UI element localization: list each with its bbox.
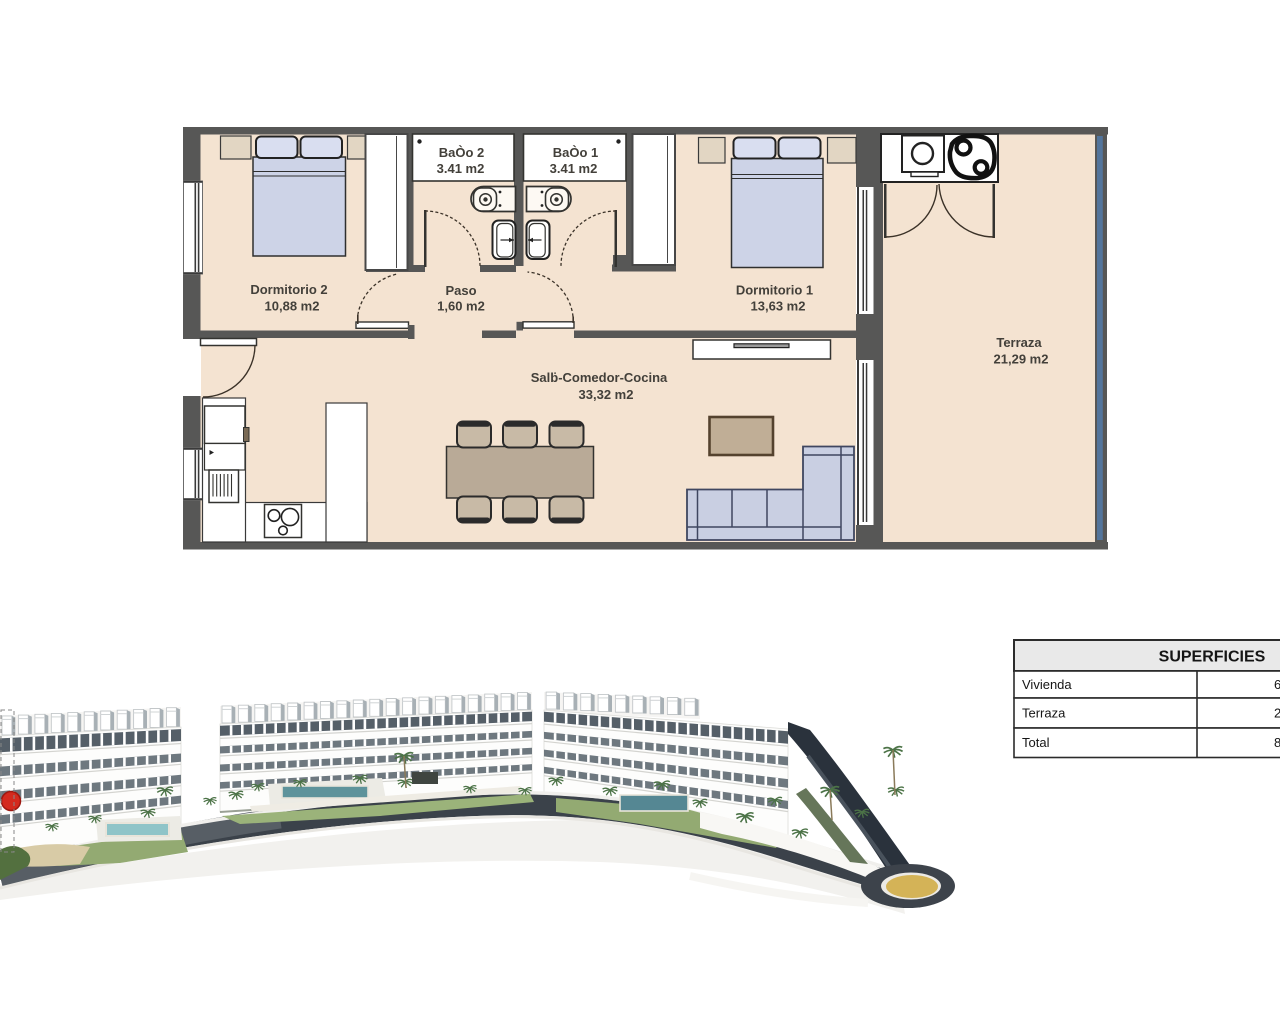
svg-text:33,32 m2: 33,32 m2	[579, 387, 634, 402]
svg-text:BaÒo 2: BaÒo 2	[439, 145, 485, 160]
svg-text:BaÒo 1: BaÒo 1	[553, 145, 599, 160]
svg-text:Terraza: Terraza	[996, 335, 1042, 350]
svg-text:Vivienda: Vivienda	[1022, 677, 1072, 692]
svg-text:21,29 m2: 21,29 m2	[994, 352, 1049, 367]
svg-text:Total: Total	[1022, 735, 1050, 750]
svg-text:Salḃ-Comedor-Cocina: Salḃ-Comedor-Cocina	[531, 370, 668, 385]
svg-text:1,60 m2: 1,60 m2	[437, 299, 485, 314]
svg-text:Terraza: Terraza	[1022, 706, 1066, 721]
svg-text:66,34 m2: 66,34 m2	[1274, 677, 1280, 692]
svg-text:21,29 m2: 21,29 m2	[1274, 706, 1280, 721]
svg-text:SUPERFICIES: SUPERFICIES	[1159, 649, 1266, 666]
svg-text:Dormitorio 2: Dormitorio 2	[250, 282, 327, 297]
svg-text:3.41 m2: 3.41 m2	[437, 161, 485, 176]
svg-text:87,63 m2: 87,63 m2	[1274, 735, 1280, 750]
svg-text:13,63 m2: 13,63 m2	[751, 299, 806, 314]
svg-text:10,88 m2: 10,88 m2	[265, 299, 320, 314]
svg-text:Paso: Paso	[445, 283, 476, 298]
svg-text:3.41 m2: 3.41 m2	[550, 161, 598, 176]
svg-text:Dormitorio 1: Dormitorio 1	[736, 283, 813, 298]
